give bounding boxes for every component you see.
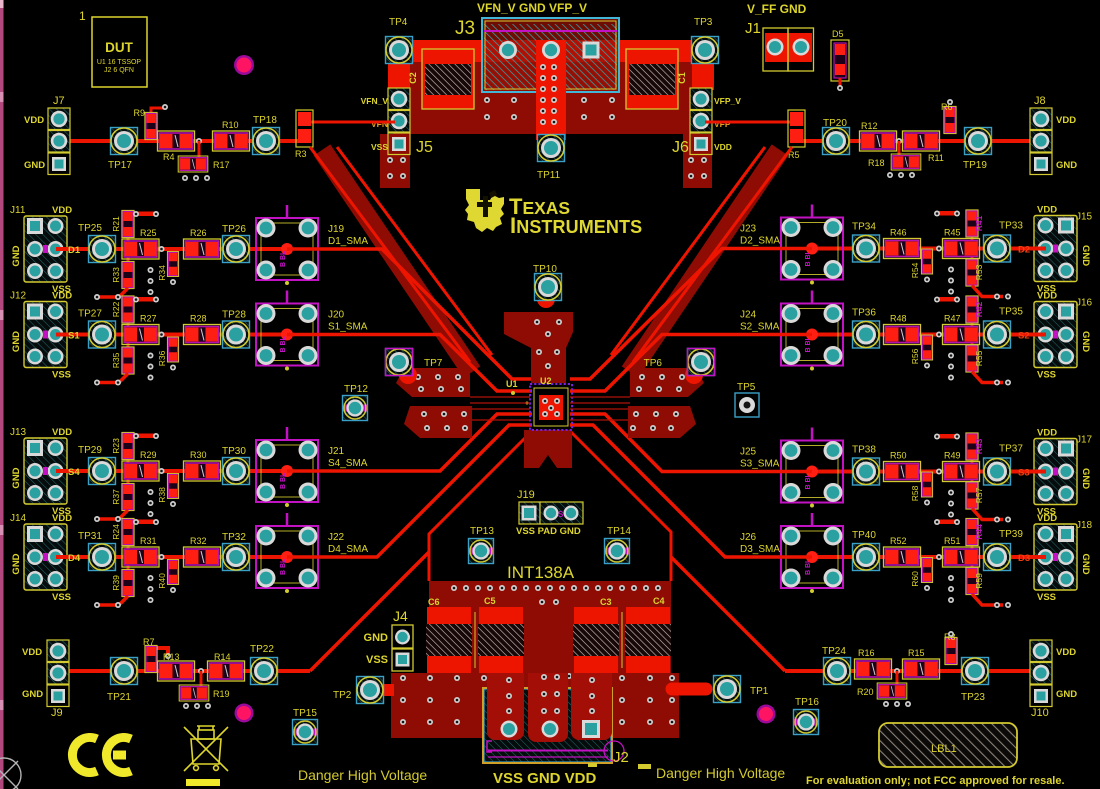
svg-text:R12: R12 xyxy=(861,121,878,131)
svg-text:J22: J22 xyxy=(328,532,345,543)
svg-text:U1 16 TSSOP: U1 16 TSSOP xyxy=(97,59,142,66)
svg-text:R25: R25 xyxy=(140,228,157,238)
svg-text:J15: J15 xyxy=(1076,212,1093,223)
svg-text:R60: R60 xyxy=(910,571,920,587)
svg-text:TP32: TP32 xyxy=(222,532,246,543)
svg-text:D4_SMA: D4_SMA xyxy=(328,544,368,555)
svg-text:R48: R48 xyxy=(890,314,907,324)
svg-text:R19: R19 xyxy=(213,689,230,699)
svg-text:TP14: TP14 xyxy=(607,526,631,537)
svg-text:TP21: TP21 xyxy=(107,692,131,703)
svg-text:TP11: TP11 xyxy=(537,170,561,181)
svg-text:R40: R40 xyxy=(157,573,167,589)
svg-text:VDD: VDD xyxy=(1037,205,1057,216)
svg-text:J16: J16 xyxy=(1076,298,1093,309)
svg-text:R29: R29 xyxy=(140,450,157,460)
svg-text:TP34: TP34 xyxy=(852,222,876,233)
svg-text:J6: J6 xyxy=(672,139,689,156)
svg-text:J26: J26 xyxy=(740,532,757,543)
svg-text:GND: GND xyxy=(11,467,22,488)
svg-text:J5: J5 xyxy=(416,139,433,156)
svg-text:S3_SMA: S3_SMA xyxy=(740,459,780,470)
svg-text:R35: R35 xyxy=(111,352,121,368)
svg-text:VSS PAD GND: VSS PAD GND xyxy=(516,526,581,537)
svg-text:TP19: TP19 xyxy=(963,160,987,171)
svg-text:R4: R4 xyxy=(163,152,175,162)
svg-text:R42: R42 xyxy=(974,301,984,317)
svg-text:J7: J7 xyxy=(53,95,65,107)
svg-text:V_FF GND: V_FF GND xyxy=(747,2,807,16)
svg-text:VSS: VSS xyxy=(52,370,71,381)
svg-text:GND: GND xyxy=(1080,245,1091,266)
svg-text:R26: R26 xyxy=(190,228,207,238)
svg-text:VDD: VDD xyxy=(1056,115,1076,126)
svg-text:TP36: TP36 xyxy=(852,308,876,319)
svg-text:TP15: TP15 xyxy=(293,708,317,719)
svg-text:For evaluation only; not FCC a: For evaluation only; not FCC approved fo… xyxy=(806,775,1065,787)
svg-text:J23: J23 xyxy=(740,224,757,235)
svg-text:J12: J12 xyxy=(10,291,27,302)
svg-text:VDD: VDD xyxy=(52,205,72,216)
svg-text:R41: R41 xyxy=(974,215,984,231)
svg-text:TP20: TP20 xyxy=(823,118,847,129)
svg-text:R57: R57 xyxy=(974,487,984,503)
svg-text:TP29: TP29 xyxy=(78,445,102,456)
svg-text:VSS: VSS xyxy=(52,592,71,603)
svg-text:J24: J24 xyxy=(740,310,757,321)
svg-text:J19: J19 xyxy=(328,224,345,235)
svg-text:TP28: TP28 xyxy=(222,310,246,321)
svg-text:VFP_V: VFP_V xyxy=(714,96,741,106)
svg-text:R21: R21 xyxy=(111,216,121,232)
svg-text:S4_SMA: S4_SMA xyxy=(328,458,368,469)
svg-text:VSS: VSS xyxy=(371,142,388,152)
svg-text:J14: J14 xyxy=(10,513,27,524)
svg-text:TP31: TP31 xyxy=(78,531,102,542)
svg-text:R53: R53 xyxy=(974,264,984,280)
svg-text:D3: D3 xyxy=(1018,553,1030,564)
svg-text:D4: D4 xyxy=(68,553,81,564)
svg-text:U2: U2 xyxy=(540,376,552,386)
svg-text:S3: S3 xyxy=(1018,468,1030,479)
svg-text:LBL1: LBL1 xyxy=(931,743,957,755)
svg-text:TP27: TP27 xyxy=(78,309,102,320)
svg-text:J8: J8 xyxy=(1034,95,1046,107)
svg-text:TP17: TP17 xyxy=(108,160,132,171)
svg-text:TP40: TP40 xyxy=(852,530,876,541)
svg-text:VDD: VDD xyxy=(1037,291,1057,302)
svg-text:R37: R37 xyxy=(111,489,121,505)
svg-text:J3: J3 xyxy=(455,18,475,39)
svg-text:GND: GND xyxy=(1080,553,1091,574)
svg-text:C4: C4 xyxy=(653,596,665,606)
svg-text:TP7: TP7 xyxy=(424,358,443,369)
svg-text:R27: R27 xyxy=(140,314,157,324)
svg-text:TP12: TP12 xyxy=(344,384,368,395)
svg-text:TP10: TP10 xyxy=(533,264,557,275)
svg-text:TP13: TP13 xyxy=(470,526,494,537)
svg-text:TP26: TP26 xyxy=(222,224,246,235)
svg-text:J18: J18 xyxy=(1076,520,1093,531)
svg-text:R11: R11 xyxy=(928,153,944,163)
svg-text:R51: R51 xyxy=(944,536,961,546)
svg-text:TP24: TP24 xyxy=(822,646,846,657)
svg-text:GND: GND xyxy=(364,632,389,644)
svg-text:TP5: TP5 xyxy=(737,382,756,393)
svg-text:TP37: TP37 xyxy=(999,444,1023,455)
svg-text:VSS: VSS xyxy=(366,654,388,666)
svg-text:TP39: TP39 xyxy=(999,529,1023,540)
svg-text:TP33: TP33 xyxy=(999,221,1023,232)
svg-text:R9: R9 xyxy=(133,108,145,118)
svg-text:TP3: TP3 xyxy=(694,17,713,28)
svg-text:GND: GND xyxy=(11,553,22,574)
svg-text:R36: R36 xyxy=(157,350,167,366)
svg-text:GND: GND xyxy=(1080,468,1091,489)
svg-text:C3: C3 xyxy=(600,597,612,607)
svg-text:GND: GND xyxy=(22,689,43,700)
svg-text:VFN_V: VFN_V xyxy=(361,96,389,106)
svg-text:TP38: TP38 xyxy=(852,445,876,456)
svg-text:J4: J4 xyxy=(393,608,408,624)
svg-text:R7: R7 xyxy=(143,637,155,647)
svg-text:R38: R38 xyxy=(157,487,167,503)
svg-text:INSTRUMENTS: INSTRUMENTS xyxy=(510,213,642,238)
svg-text:VDD: VDD xyxy=(52,291,72,302)
svg-text:GND: GND xyxy=(1056,160,1077,171)
svg-text:TEXAS: TEXAS xyxy=(509,194,570,219)
svg-text:VDD: VDD xyxy=(1037,513,1057,524)
svg-text:VSS GND VDD: VSS GND VDD xyxy=(493,770,597,787)
svg-text:R32: R32 xyxy=(190,536,207,546)
svg-text:R58: R58 xyxy=(910,485,920,501)
svg-text:R20: R20 xyxy=(857,687,874,697)
svg-text:R31: R31 xyxy=(140,536,157,546)
svg-text:R45: R45 xyxy=(944,228,961,238)
svg-text:R24: R24 xyxy=(111,524,121,540)
svg-text:VDD: VDD xyxy=(24,115,44,126)
svg-text:J13: J13 xyxy=(10,427,27,438)
svg-text:R23: R23 xyxy=(111,438,121,454)
svg-text:TP18: TP18 xyxy=(253,115,277,126)
svg-text:Danger High Voltage: Danger High Voltage xyxy=(298,767,427,783)
svg-text:S4: S4 xyxy=(68,467,80,478)
svg-text:S2: S2 xyxy=(1018,331,1030,342)
svg-text:J17: J17 xyxy=(1076,435,1093,446)
svg-text:R54: R54 xyxy=(910,262,920,278)
svg-text:R3: R3 xyxy=(295,149,307,159)
svg-text:GND: GND xyxy=(11,331,22,352)
svg-text:S: S xyxy=(558,510,564,519)
svg-text:J2 6 QFN: J2 6 QFN xyxy=(104,67,134,74)
svg-text:INT138A: INT138A xyxy=(507,563,575,582)
svg-text:R17: R17 xyxy=(213,160,230,170)
svg-text:R55: R55 xyxy=(974,350,984,366)
svg-text:TP6: TP6 xyxy=(644,358,663,369)
svg-text:R43: R43 xyxy=(974,438,984,454)
svg-text:TP23: TP23 xyxy=(961,692,985,703)
svg-text:R28: R28 xyxy=(190,314,207,324)
svg-text:D2: D2 xyxy=(1018,245,1030,256)
svg-text:GND: GND xyxy=(24,160,45,171)
svg-text:R44: R44 xyxy=(974,524,984,540)
svg-text:J21: J21 xyxy=(328,446,345,457)
svg-text:VDD: VDD xyxy=(714,142,732,152)
svg-text:TP4: TP4 xyxy=(389,17,408,28)
svg-text:R50: R50 xyxy=(890,451,907,461)
svg-text:R16: R16 xyxy=(858,648,875,658)
svg-text:TP25: TP25 xyxy=(78,223,102,234)
svg-text:S1_SMA: S1_SMA xyxy=(328,322,368,333)
svg-text:R33: R33 xyxy=(111,267,121,283)
svg-text:VFN_V GND VFP_V: VFN_V GND VFP_V xyxy=(477,1,587,15)
svg-text:R59: R59 xyxy=(974,573,984,589)
svg-text:VDD: VDD xyxy=(52,513,72,524)
svg-text:VDD: VDD xyxy=(22,647,42,658)
svg-text:D1_SMA: D1_SMA xyxy=(328,236,368,247)
svg-text:D5: D5 xyxy=(832,29,844,39)
svg-text:GND: GND xyxy=(11,245,22,266)
svg-text:R15: R15 xyxy=(908,648,925,658)
svg-text:VSS: VSS xyxy=(1037,592,1056,603)
svg-text:VDD: VDD xyxy=(52,427,72,438)
svg-text:D2_SMA: D2_SMA xyxy=(740,236,780,247)
svg-text:D3_SMA: D3_SMA xyxy=(740,544,780,555)
svg-text:C5: C5 xyxy=(484,596,496,606)
svg-text:TP2: TP2 xyxy=(333,690,352,701)
svg-text:C1: C1 xyxy=(677,72,687,84)
svg-text:DUT: DUT xyxy=(105,40,133,55)
svg-text:J10: J10 xyxy=(1031,707,1049,719)
svg-text:Danger High Voltage: Danger High Voltage xyxy=(656,765,785,781)
svg-text:R30: R30 xyxy=(190,450,207,460)
svg-text:TP22: TP22 xyxy=(250,644,274,655)
svg-text:GND: GND xyxy=(1056,689,1077,700)
svg-text:R39: R39 xyxy=(111,575,121,591)
svg-text:J25: J25 xyxy=(740,447,757,458)
svg-text:U1: U1 xyxy=(506,379,518,389)
svg-text:R22: R22 xyxy=(111,301,121,317)
svg-text:VDD: VDD xyxy=(1037,428,1057,439)
svg-text:R34: R34 xyxy=(157,265,167,281)
svg-text:D1: D1 xyxy=(68,245,81,256)
svg-text:VSS: VSS xyxy=(1037,370,1056,381)
svg-text:R56: R56 xyxy=(910,348,920,364)
svg-text:TP30: TP30 xyxy=(222,446,246,457)
svg-text:S1: S1 xyxy=(68,331,80,342)
svg-text:R46: R46 xyxy=(890,228,907,238)
svg-text:J19: J19 xyxy=(517,489,535,501)
svg-text:R47: R47 xyxy=(944,314,961,324)
svg-text:GND: GND xyxy=(1080,331,1091,352)
svg-text:TP35: TP35 xyxy=(999,307,1023,318)
svg-text:J1: J1 xyxy=(745,20,761,37)
svg-text:J2: J2 xyxy=(613,749,629,766)
svg-text:C2: C2 xyxy=(408,72,418,84)
svg-text:R52: R52 xyxy=(890,536,907,546)
svg-text:VDD: VDD xyxy=(1056,647,1076,658)
svg-text:J9: J9 xyxy=(51,707,63,719)
svg-text:TP16: TP16 xyxy=(795,697,819,708)
svg-text:J11: J11 xyxy=(10,205,26,216)
svg-text:R10: R10 xyxy=(222,120,239,130)
svg-text:TP1: TP1 xyxy=(750,686,769,697)
svg-text:C6: C6 xyxy=(428,597,440,607)
svg-text:R13: R13 xyxy=(163,652,180,662)
svg-text:R49: R49 xyxy=(944,451,961,461)
svg-text:R18: R18 xyxy=(868,158,885,168)
svg-text:J20: J20 xyxy=(328,310,345,321)
svg-text:1: 1 xyxy=(79,9,86,23)
svg-text:S2_SMA: S2_SMA xyxy=(740,322,780,333)
svg-text:R14: R14 xyxy=(214,652,231,662)
